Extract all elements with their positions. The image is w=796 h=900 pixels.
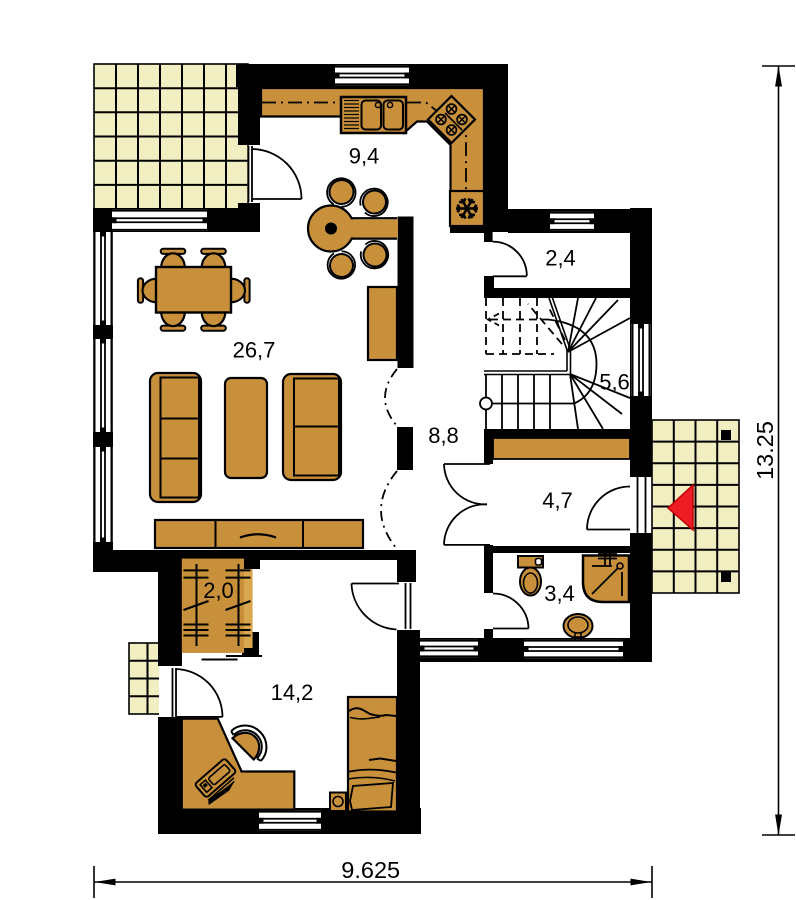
svg-text:9.625: 9.625 — [341, 857, 400, 883]
svg-text:5,6: 5,6 — [599, 370, 630, 395]
svg-text:2,4: 2,4 — [545, 246, 576, 271]
svg-text:9,4: 9,4 — [349, 144, 380, 169]
svg-text:26,7: 26,7 — [233, 338, 276, 363]
svg-text:4,7: 4,7 — [542, 488, 573, 513]
svg-text:3,4: 3,4 — [544, 581, 575, 606]
svg-text:14,2: 14,2 — [271, 680, 314, 705]
svg-text:2,0: 2,0 — [203, 578, 234, 603]
svg-text:13.25: 13.25 — [752, 421, 778, 480]
svg-text:8,8: 8,8 — [428, 423, 459, 448]
